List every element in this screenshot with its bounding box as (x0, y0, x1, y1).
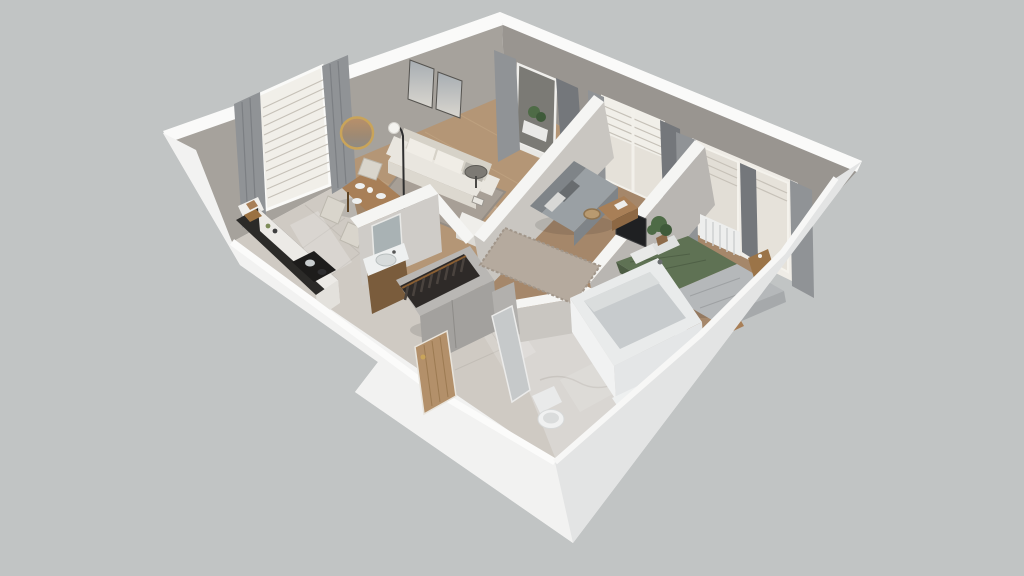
bottle (266, 224, 271, 229)
sink-basin (376, 254, 396, 266)
apartment-3d-floorplan (0, 0, 1024, 576)
floorplan-render (0, 0, 1024, 576)
balcony-plant-leaf (536, 112, 546, 122)
place-setting (376, 193, 386, 199)
table-vase (367, 187, 373, 193)
bottle (273, 229, 278, 234)
place-setting (352, 198, 362, 204)
cooking-pot (305, 260, 315, 267)
bath-faucet (658, 260, 663, 265)
wall-art-frame (408, 60, 434, 108)
place-setting (355, 183, 365, 189)
door-handle (421, 355, 426, 360)
bedside-lamp (758, 254, 762, 258)
lamp-globe (389, 123, 400, 134)
curtain-panel (740, 163, 758, 262)
plant-leaves (647, 225, 657, 235)
curtain-panel (494, 50, 520, 162)
plant-leaves (660, 224, 672, 236)
cooking-pot (318, 269, 327, 275)
round-mirror (341, 118, 373, 149)
faucet (392, 250, 396, 254)
wicker-stool (584, 209, 600, 219)
toilet-bowl (543, 413, 559, 424)
